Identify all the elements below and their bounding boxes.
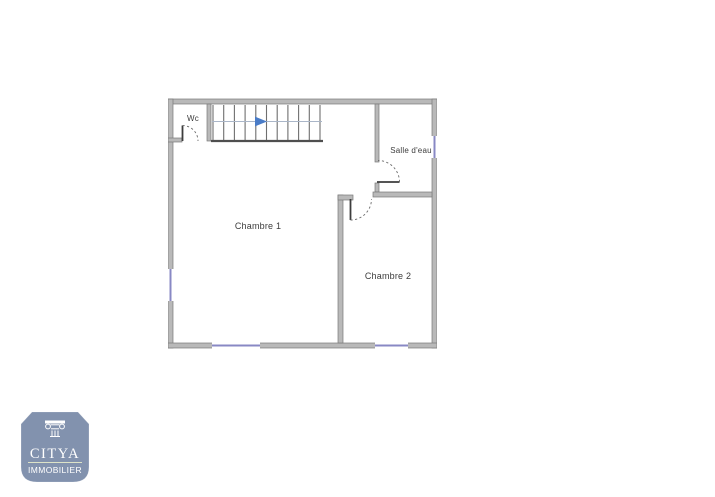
chambre2-door [351, 199, 372, 220]
window-bottom-right [375, 343, 408, 349]
wall-wc-stairs [207, 104, 211, 141]
floor-plan: Wc Salle d'eau Chambre 1 Chambre 2 [168, 98, 437, 350]
room-label-wc: Wc [187, 114, 199, 123]
citya-logo: CITYA IMMOBILIER [21, 412, 89, 482]
wall-wc-bottom-stub [168, 138, 182, 142]
windows [168, 136, 437, 349]
interior-walls [168, 104, 432, 343]
window-right [432, 136, 438, 158]
wall-salle-deau-jamb [375, 183, 379, 192]
window-left [168, 269, 174, 301]
floor-plan-drawing: Wc Salle d'eau Chambre 1 Chambre 2 [168, 98, 437, 350]
staircase [211, 105, 323, 141]
wall-top [168, 99, 437, 104]
stair-treads [213, 105, 320, 140]
wall-salle-deau-bottom [373, 192, 432, 197]
doors [183, 126, 400, 221]
room-label-chambre-2: Chambre 2 [365, 271, 411, 281]
wall-left [168, 99, 173, 348]
wall-chambre-divider [338, 195, 343, 343]
wc-door [183, 126, 199, 142]
room-label-chambre-1: Chambre 1 [235, 221, 281, 231]
room-label-salle-deau: Salle d'eau [390, 146, 432, 155]
logo-subtitle-text: IMMOBILIER [28, 465, 82, 475]
salle-deau-door [377, 161, 400, 183]
wall-salle-deau-left [375, 104, 379, 162]
logo-brand-text: CITYA [30, 446, 80, 462]
citya-logo-badge: CITYA IMMOBILIER [21, 412, 89, 482]
window-bottom-left [212, 343, 260, 349]
stairs-direction-arrow-icon [255, 117, 267, 127]
